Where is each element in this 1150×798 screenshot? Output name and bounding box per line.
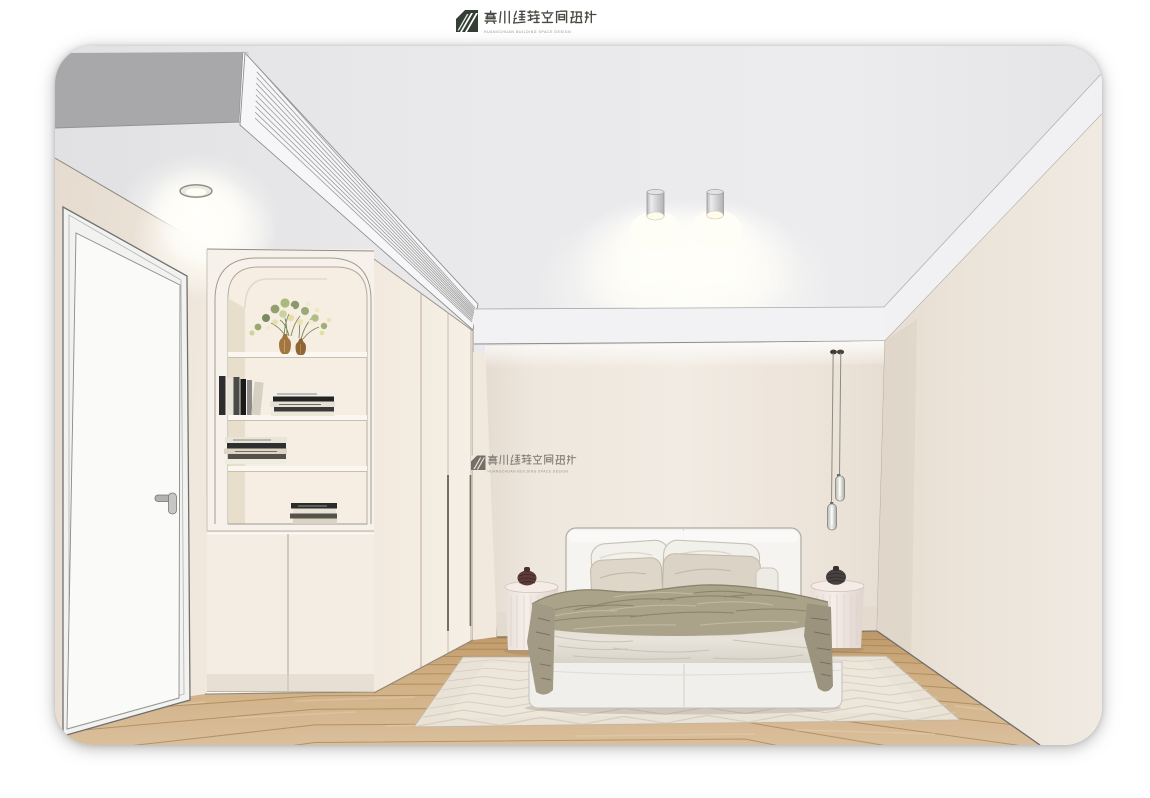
- svg-text:HUANGCHUAN BUILDING SPACE DESI: HUANGCHUAN BUILDING SPACE DESIGN: [484, 30, 571, 34]
- svg-text:HUANGCHUAN BUILDING SPACE DESI: HUANGCHUAN BUILDING SPACE DESIGN: [488, 470, 569, 474]
